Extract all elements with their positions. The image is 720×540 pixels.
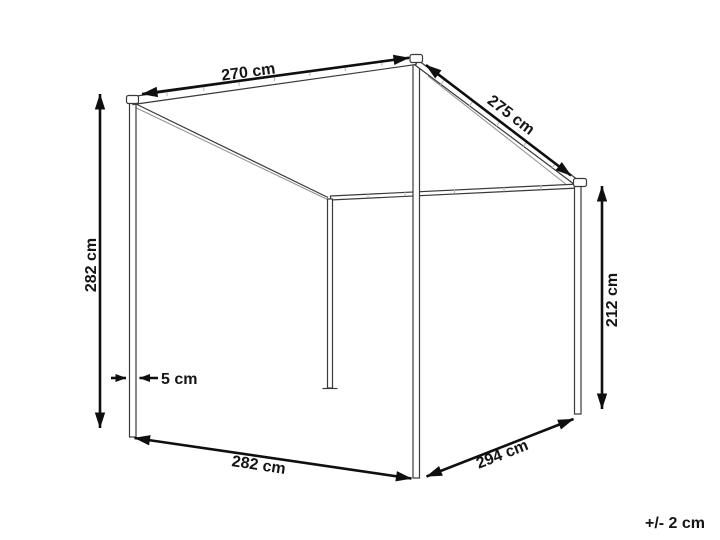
dim-front-post-height-label: 282 cm [83, 238, 100, 292]
back-right-post [575, 186, 582, 414]
front-right-corner-cap [410, 55, 423, 63]
dimension-drawing-canvas: 270 cm 275 cm 282 cm 212 cm 5 cm 282 cm … [0, 0, 720, 540]
front-left-corner-cap [127, 96, 139, 104]
left-roof-canopy-edge [137, 108, 329, 200]
left-roof-edge [136, 104, 328, 198]
tolerance-note: +/- 2 cm [645, 515, 705, 532]
back-left-post [328, 199, 333, 388]
dimension-labels: 270 cm 275 cm 282 cm 212 cm 5 cm 282 cm … [83, 60, 705, 532]
front-left-post [130, 101, 137, 437]
front-right-post [413, 61, 420, 478]
right-roof-canopy-edge [428, 76, 572, 189]
dim-bottom-width-label: 282 cm [231, 453, 287, 478]
dim-post-thickness-label: 5 cm [161, 371, 197, 388]
dim-back-post-height-label: 212 cm [604, 273, 621, 327]
right-roof-beam [415, 61, 580, 187]
gazebo-dimension-diagram: 270 cm 275 cm 282 cm 212 cm 5 cm 282 cm … [0, 0, 720, 540]
dim-bottom-depth-label: 294 cm [474, 437, 531, 473]
back-right-corner-cap [574, 179, 587, 187]
dim-roof-slope-arrow [426, 65, 571, 176]
